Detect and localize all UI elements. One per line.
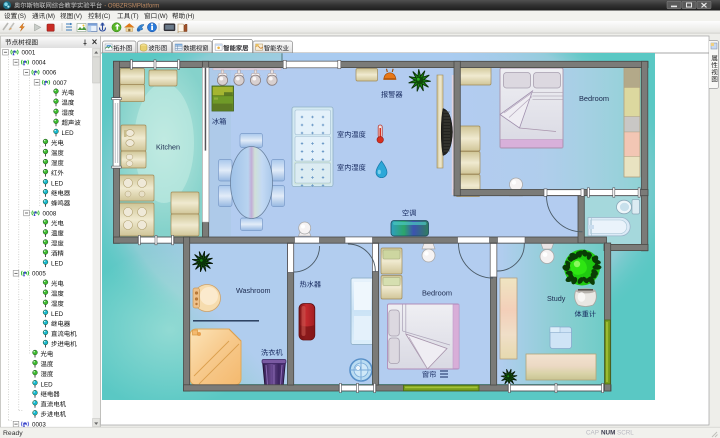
svg-text:0001: 0001 (22, 50, 36, 57)
svg-text:(S): (S) (18, 13, 26, 20)
svg-text:LED: LED (51, 180, 64, 187)
svg-text:LED: LED (41, 381, 54, 388)
svg-text:- O9BZRSMPlatform: - O9BZRSMPlatform (104, 4, 159, 10)
svg-text:NUM: NUM (601, 430, 615, 437)
svg-text:Bedroom: Bedroom (579, 94, 609, 103)
svg-text:LED: LED (62, 130, 75, 137)
svg-text:(T): (T) (131, 13, 139, 20)
svg-text:(M): (M) (46, 13, 55, 20)
svg-text:(C): (C) (102, 13, 111, 20)
svg-text:(V): (V) (74, 13, 82, 20)
svg-text:0007: 0007 (53, 80, 67, 87)
svg-text:(W): (W) (158, 13, 168, 20)
svg-text:Washroom: Washroom (236, 286, 270, 295)
svg-text:LED: LED (51, 311, 64, 318)
svg-text:0008: 0008 (43, 210, 57, 217)
svg-text:SCRL: SCRL (617, 430, 634, 437)
svg-text:0004: 0004 (32, 60, 46, 67)
svg-text:Bedroom: Bedroom (422, 289, 452, 298)
svg-text:CAP: CAP (586, 430, 599, 437)
svg-text:0005: 0005 (32, 271, 46, 278)
svg-text:Study: Study (547, 294, 566, 303)
svg-text:LED: LED (51, 261, 64, 268)
svg-text:Kitchen: Kitchen (156, 143, 180, 152)
svg-text:0006: 0006 (43, 70, 57, 77)
svg-text:(H): (H) (186, 13, 195, 20)
svg-text:Ready: Ready (3, 430, 23, 437)
